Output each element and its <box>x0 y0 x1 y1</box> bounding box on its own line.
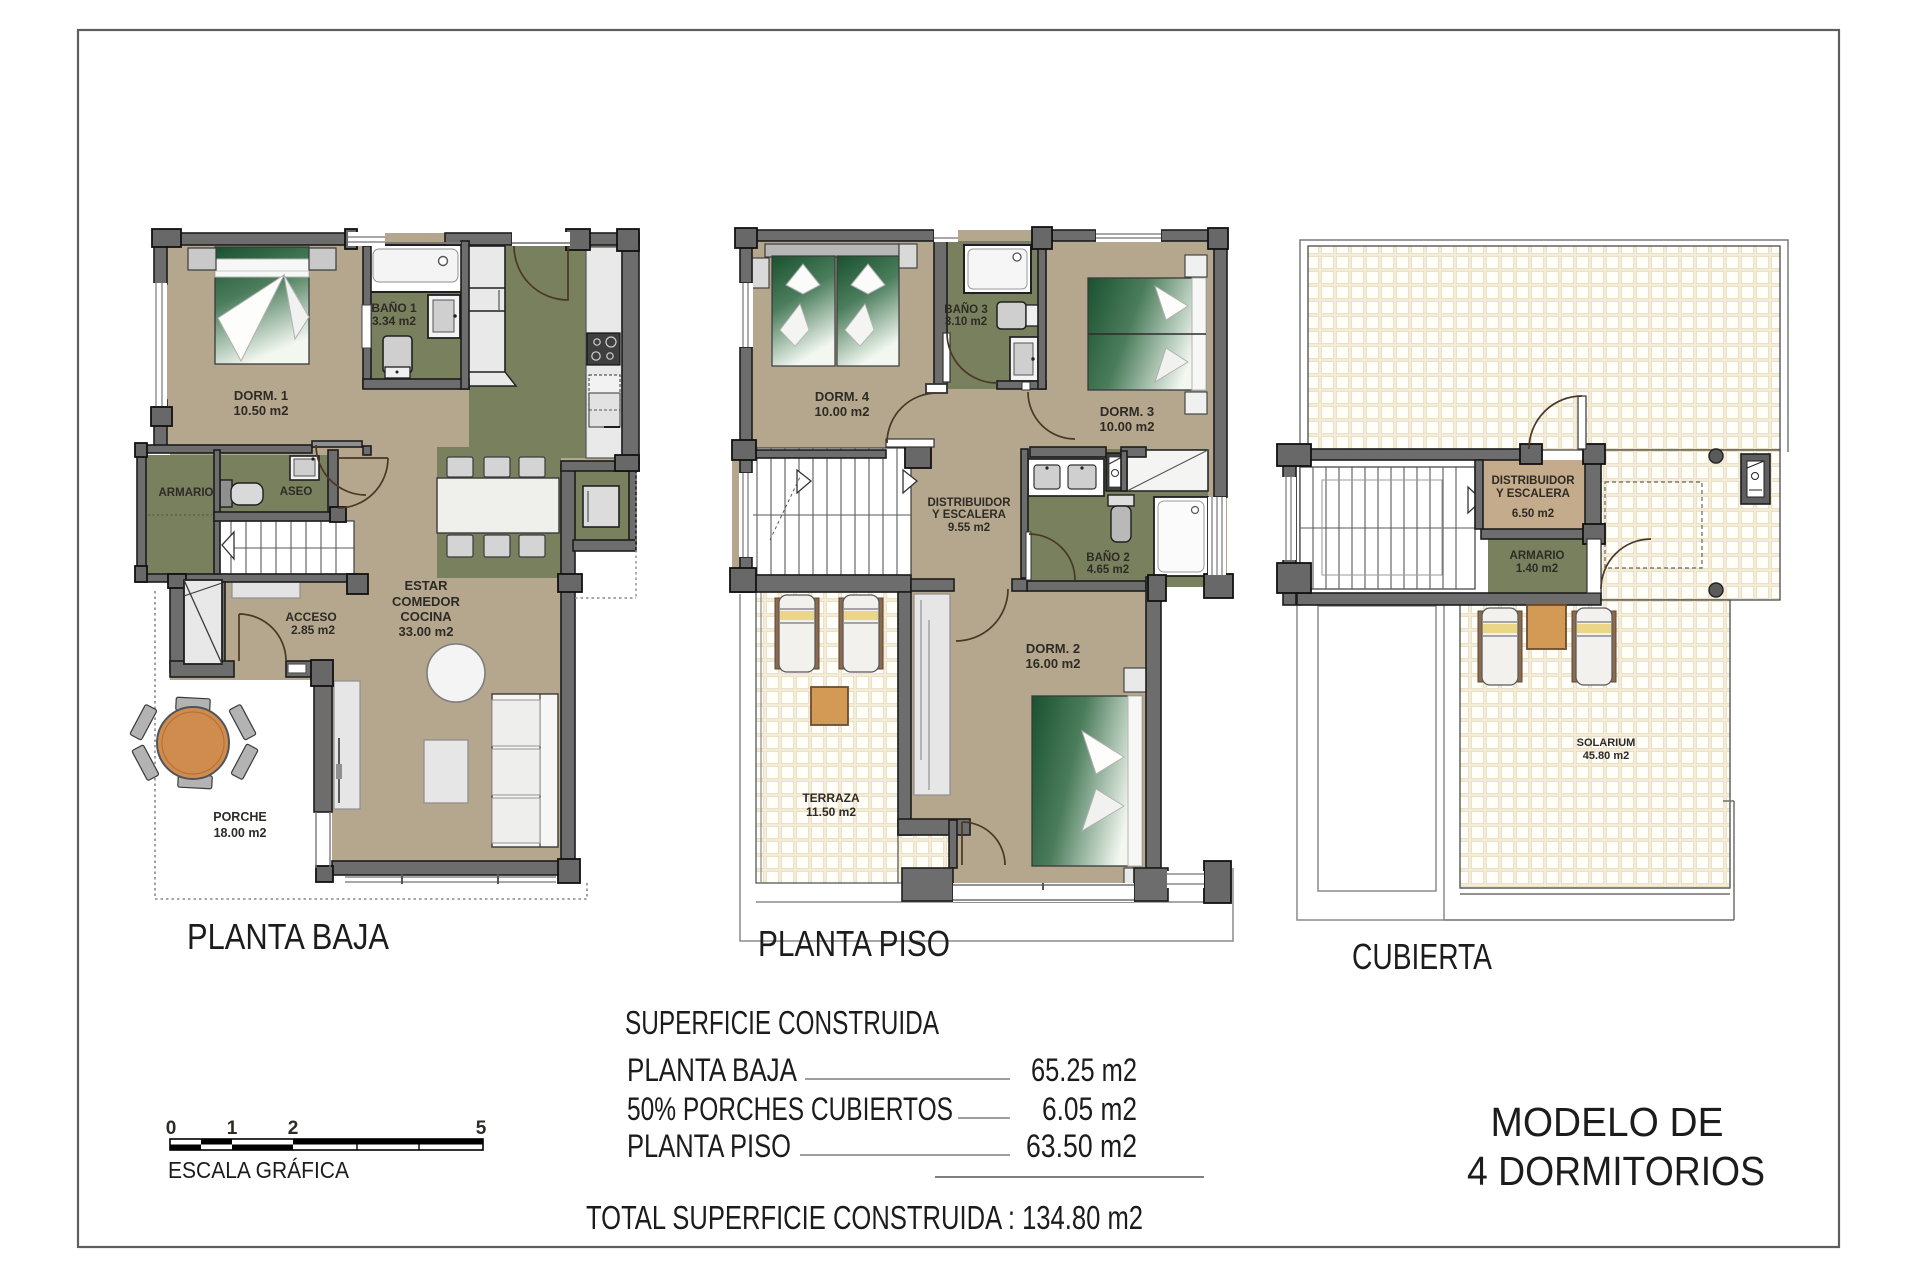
svg-text:PLANTA PISO: PLANTA PISO <box>627 1128 791 1164</box>
svg-text:1: 1 <box>227 1118 238 1139</box>
svg-text:3.34 m2: 3.34 m2 <box>372 314 416 328</box>
svg-text:ASEO: ASEO <box>280 486 313 498</box>
svg-text:2: 2 <box>288 1118 299 1139</box>
svg-text:Y ESCALERA: Y ESCALERA <box>932 509 1006 521</box>
svg-text:BAÑO 3: BAÑO 3 <box>944 303 987 316</box>
svg-text:PORCHE: PORCHE <box>213 810 266 824</box>
svg-text:0: 0 <box>166 1118 177 1139</box>
svg-text:DORM. 4: DORM. 4 <box>815 389 870 404</box>
svg-text:33.00 m2: 33.00 m2 <box>399 624 454 639</box>
svg-text:4 DORMITORIOS: 4 DORMITORIOS <box>1467 1148 1765 1194</box>
svg-text:BAÑO 1: BAÑO 1 <box>371 300 417 315</box>
svg-text:10.50 m2: 10.50 m2 <box>234 403 289 418</box>
svg-text:63.50 m2: 63.50 m2 <box>1026 1128 1137 1164</box>
svg-text:TOTAL SUPERFICIE CONSTRUIDA :: TOTAL SUPERFICIE CONSTRUIDA : 134.80 m2 <box>586 1199 1143 1236</box>
svg-text:65.25 m2: 65.25 m2 <box>1031 1052 1137 1088</box>
svg-text:4.65 m2: 4.65 m2 <box>1087 564 1129 576</box>
svg-text:Y ESCALERA: Y ESCALERA <box>1496 488 1570 500</box>
svg-text:45.80 m2: 45.80 m2 <box>1583 750 1629 762</box>
svg-text:16.00 m2: 16.00 m2 <box>1026 656 1081 671</box>
svg-text:ACCESO: ACCESO <box>285 610 336 624</box>
svg-text:50% PORCHES CUBIERTOS: 50% PORCHES CUBIERTOS <box>627 1091 953 1127</box>
svg-text:SUPERFICIE CONSTRUIDA: SUPERFICIE CONSTRUIDA <box>625 1004 939 1041</box>
svg-text:PLANTA BAJA: PLANTA BAJA <box>627 1052 798 1088</box>
svg-text:DORM. 1: DORM. 1 <box>234 388 288 403</box>
svg-text:ESCALA GRÁFICA: ESCALA GRÁFICA <box>168 1157 350 1183</box>
svg-text:6.50 m2: 6.50 m2 <box>1512 508 1554 520</box>
svg-text:MODELO DE: MODELO DE <box>1491 1099 1724 1145</box>
svg-text:5: 5 <box>476 1118 487 1139</box>
svg-text:COMEDOR: COMEDOR <box>392 594 461 609</box>
svg-text:PLANTA BAJA: PLANTA BAJA <box>187 916 389 957</box>
svg-text:SOLARIUM: SOLARIUM <box>1577 737 1636 749</box>
svg-text:ARMARIO: ARMARIO <box>159 487 214 499</box>
svg-text:PLANTA PISO: PLANTA PISO <box>758 923 950 964</box>
svg-text:3.10 m2: 3.10 m2 <box>945 316 987 328</box>
svg-text:1.40 m2: 1.40 m2 <box>1516 563 1558 575</box>
svg-text:DORM. 3: DORM. 3 <box>1100 404 1154 419</box>
svg-text:10.00 m2: 10.00 m2 <box>1100 419 1155 434</box>
svg-text:9.55 m2: 9.55 m2 <box>948 522 990 534</box>
svg-text:11.50 m2: 11.50 m2 <box>806 805 856 819</box>
svg-text:TERRAZA: TERRAZA <box>802 791 860 805</box>
svg-text:ARMARIO: ARMARIO <box>1510 550 1565 562</box>
svg-text:6.05 m2: 6.05 m2 <box>1042 1091 1137 1127</box>
svg-text:DORM. 2: DORM. 2 <box>1026 641 1080 656</box>
svg-text:COCINA: COCINA <box>400 609 452 624</box>
svg-text:BAÑO 2: BAÑO 2 <box>1086 551 1129 564</box>
svg-text:18.00 m2: 18.00 m2 <box>214 826 267 840</box>
svg-text:10.00 m2: 10.00 m2 <box>815 404 870 419</box>
svg-text:DISTRIBUIDOR: DISTRIBUIDOR <box>1491 475 1575 487</box>
svg-text:ESTAR: ESTAR <box>404 578 448 593</box>
svg-text:2.85 m2: 2.85 m2 <box>291 623 335 637</box>
svg-text:CUBIERTA: CUBIERTA <box>1352 936 1492 977</box>
svg-text:DISTRIBUIDOR: DISTRIBUIDOR <box>927 497 1011 509</box>
